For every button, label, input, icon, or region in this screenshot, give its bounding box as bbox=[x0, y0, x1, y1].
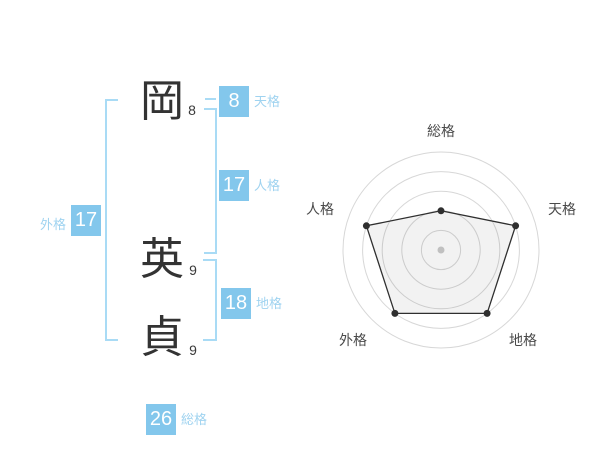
jinkaku-label: 人格 bbox=[254, 179, 280, 192]
axis-label: 総格 bbox=[427, 123, 455, 139]
radar-polygon bbox=[366, 211, 515, 314]
data-point bbox=[438, 207, 445, 214]
jinkaku-value-badge: 17 bbox=[219, 170, 249, 201]
data-point bbox=[512, 222, 519, 229]
name-fortune-panel: 岡 8 英 9 貞 9 8 天格 17 人格 18 地格 外格 17 26 総格… bbox=[0, 0, 600, 470]
name-character-2: 英 bbox=[132, 238, 192, 282]
gaikaku-value-badge: 17 bbox=[71, 205, 101, 236]
axis-label: 外格 bbox=[339, 332, 367, 348]
axis-label: 人格 bbox=[306, 201, 334, 217]
chikaku-label: 地格 bbox=[256, 297, 282, 310]
jinkaku-bracket bbox=[204, 108, 217, 254]
tenkaku-value-badge: 8 bbox=[219, 86, 249, 117]
stroke-count-1: 8 bbox=[185, 103, 199, 117]
name-character-3: 貞 bbox=[132, 316, 192, 360]
axis-label: 天格 bbox=[548, 201, 576, 217]
chikaku-bracket bbox=[203, 259, 217, 341]
axis-label: 地格 bbox=[509, 332, 537, 348]
data-point bbox=[391, 310, 398, 317]
chikaku-value-badge: 18 bbox=[221, 288, 251, 319]
stroke-count-2: 9 bbox=[186, 263, 200, 277]
stroke-count-3: 9 bbox=[186, 343, 200, 357]
center-dot bbox=[438, 247, 445, 254]
radar-chart: 総格天格地格外格人格 bbox=[280, 105, 600, 365]
tenkaku-bracket bbox=[205, 98, 216, 100]
tenkaku-label: 天格 bbox=[254, 95, 280, 108]
soukaku-label: 総格 bbox=[181, 413, 207, 426]
gaikaku-bracket bbox=[105, 99, 118, 341]
name-character-1: 岡 bbox=[132, 80, 192, 124]
data-point bbox=[484, 310, 491, 317]
gaikaku-label: 外格 bbox=[40, 218, 66, 231]
data-point bbox=[363, 222, 370, 229]
soukaku-value-badge: 26 bbox=[146, 404, 176, 435]
